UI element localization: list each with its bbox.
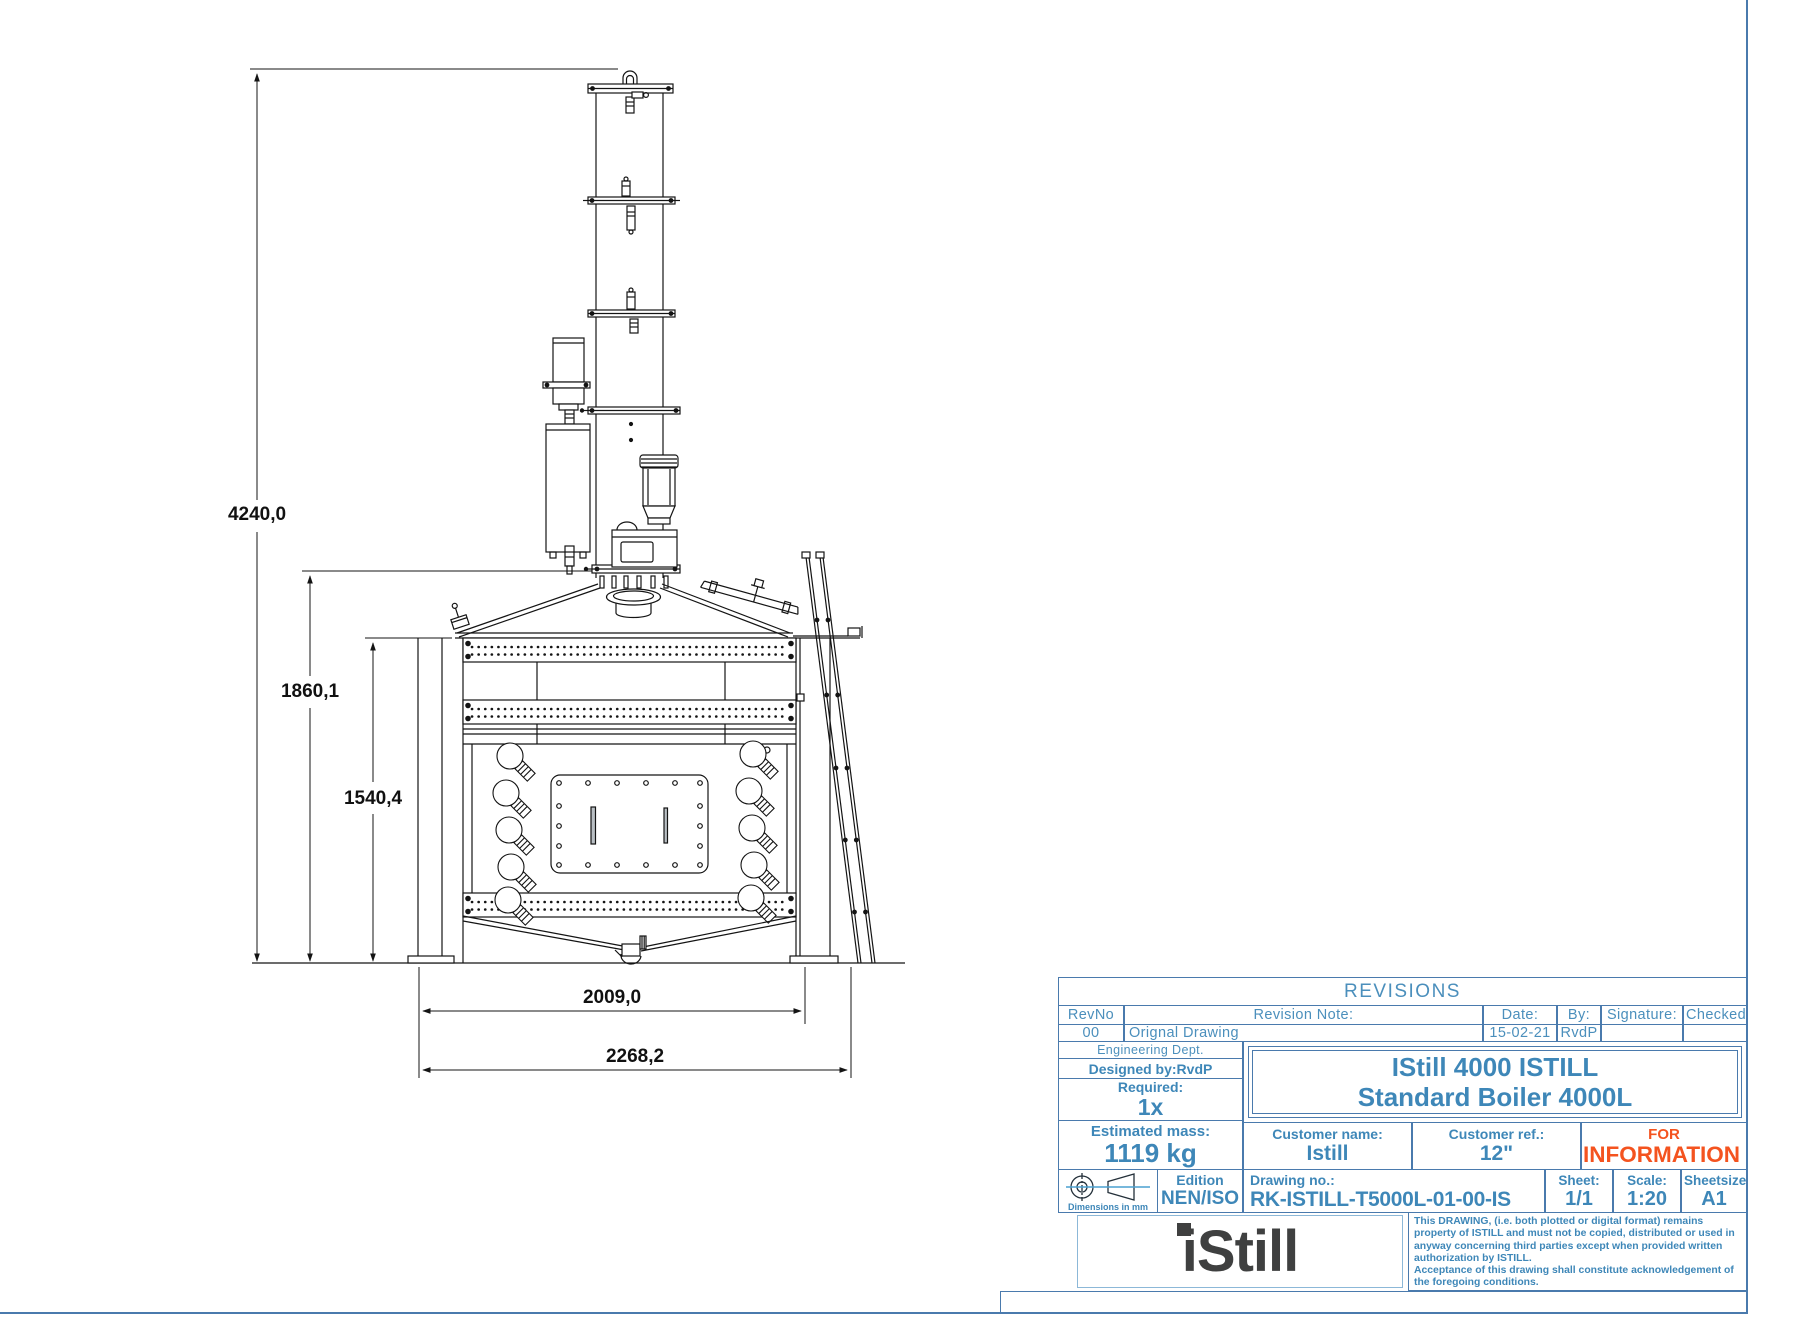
revisions-header-date: Date: [1483, 1005, 1557, 1025]
dim-label-boiler-width: 2009,0 [583, 987, 641, 1008]
machine-linework [252, 71, 905, 964]
roof-valve [446, 601, 469, 629]
inspection-plate [551, 775, 708, 873]
required-label: Required: [1118, 1080, 1183, 1095]
department-cell: Engineering Dept. [1058, 1041, 1243, 1059]
disclaimer-paragraph-2: Acceptance of this drawing shall constit… [1414, 1265, 1741, 1290]
required-cell: Required: 1x [1058, 1078, 1243, 1121]
scale-label: Scale: [1627, 1173, 1667, 1188]
drawing-sheet: 4240,0 1860,1 1540,4 2009,0 2268,2 REVIS… [0, 0, 1816, 1328]
sheet-label: Sheet: [1558, 1173, 1599, 1188]
customer-name-cell: Customer name: Istill [1243, 1122, 1412, 1170]
customer-ref-value: 12" [1480, 1142, 1513, 1165]
sheet-bottom-border [0, 1312, 1748, 1314]
designed-by-cell: Designed by:RvdP [1058, 1058, 1243, 1079]
condenser-assembly [543, 338, 590, 574]
sheet-right-border [1746, 0, 1748, 1314]
customer-ref-cell: Customer ref.: 12" [1412, 1122, 1581, 1170]
revision-row-signature [1601, 1024, 1683, 1042]
lifting-lug [623, 71, 637, 84]
istill-logo-text: iStill [1182, 1222, 1298, 1282]
stamp-line1: FOR [1582, 1126, 1746, 1143]
disclaimer-paragraph-1: This DRAWING, (i.e. both plotted or digi… [1414, 1216, 1741, 1265]
required-value: 1x [1138, 1095, 1164, 1119]
revisions-header-note: Revision Note: [1124, 1005, 1483, 1025]
revisions-header-revno: RevNo [1058, 1005, 1124, 1025]
agitator-motor [612, 455, 678, 567]
disclaimer-box: This DRAWING, (i.e. both plotted or digi… [1408, 1212, 1747, 1291]
drawing-no-label: Drawing no.: [1250, 1172, 1335, 1188]
estimated-mass-cell: Estimated mass: 1119 kg [1058, 1120, 1243, 1170]
customer-ref-label: Customer ref.: [1449, 1127, 1545, 1142]
drawing-no-value: RK-ISTILL-T5000L-01-00-IS [1250, 1188, 1511, 1211]
istill-logo: iStill [1077, 1215, 1403, 1288]
sheetsize-cell: Sheetsize: A1 [1681, 1169, 1747, 1213]
istill-logo-dot [1177, 1223, 1191, 1236]
first-angle-projection-icon [1062, 1172, 1154, 1202]
stamp-line2: INFORMATION [1582, 1143, 1746, 1167]
mass-value: 1119 kg [1104, 1140, 1197, 1167]
cone-bottom-drain [463, 916, 796, 964]
title-block-bottom-strip [1000, 1291, 1747, 1314]
dimension-lines [250, 69, 851, 1078]
customer-name-value: Istill [1306, 1142, 1348, 1165]
dimensions-unit-note: Dimensions in mm [1068, 1202, 1148, 1212]
for-information-stamp: FOR INFORMATION [1581, 1122, 1747, 1170]
sheet-value: 1/1 [1565, 1188, 1593, 1210]
revision-row-date: 15-02-21 [1483, 1024, 1557, 1042]
dim-label-boiler-height: 1540,4 [344, 788, 403, 809]
revision-row-by: RvdP [1557, 1024, 1601, 1042]
title-box: IStill 4000 ISTILL Standard Boiler 4000L [1252, 1050, 1738, 1114]
scale-value: 1:20 [1627, 1188, 1667, 1210]
drawing-title-line1: IStill 4000 ISTILL [1392, 1052, 1599, 1082]
dim-label-column-base-height: 1860,1 [281, 681, 340, 702]
edition-label: Edition [1176, 1173, 1223, 1188]
revisions-header-signature: Signature: [1601, 1005, 1683, 1025]
drawing-no-cell: Drawing no.: RK-ISTILL-T5000L-01-00-IS [1243, 1169, 1545, 1213]
sheetsize-label: Sheetsize: [1682, 1173, 1747, 1188]
ladder [802, 552, 875, 963]
manway-lid [700, 565, 804, 616]
edition-cell: Edition NEN/ISO [1157, 1169, 1243, 1213]
edition-value: NEN/ISO [1161, 1188, 1239, 1209]
scale-cell: Scale: 1:20 [1613, 1169, 1681, 1213]
dim-label-overall-width: 2268,2 [606, 1046, 664, 1067]
sheet-cell: Sheet: 1/1 [1545, 1169, 1613, 1213]
revision-row-revno: 00 [1058, 1024, 1124, 1042]
revision-row-note: Orignal Drawing [1124, 1024, 1483, 1042]
revisions-header-by: By: [1557, 1005, 1601, 1025]
revisions-title: REVISIONS [1058, 977, 1747, 1006]
drawing-title-line2: Standard Boiler 4000L [1358, 1082, 1633, 1112]
customer-name-label: Customer name: [1272, 1127, 1382, 1142]
revisions-header-checked: Checked: [1683, 1005, 1747, 1025]
sheetsize-value: A1 [1682, 1188, 1746, 1210]
drawing-title-cell: IStill 4000 ISTILL Standard Boiler 4000L [1243, 1041, 1747, 1123]
dim-label-total-height: 4240,0 [228, 504, 286, 525]
projection-symbol-cell: Dimensions in mm [1058, 1169, 1158, 1213]
revision-row-checked [1683, 1024, 1747, 1042]
